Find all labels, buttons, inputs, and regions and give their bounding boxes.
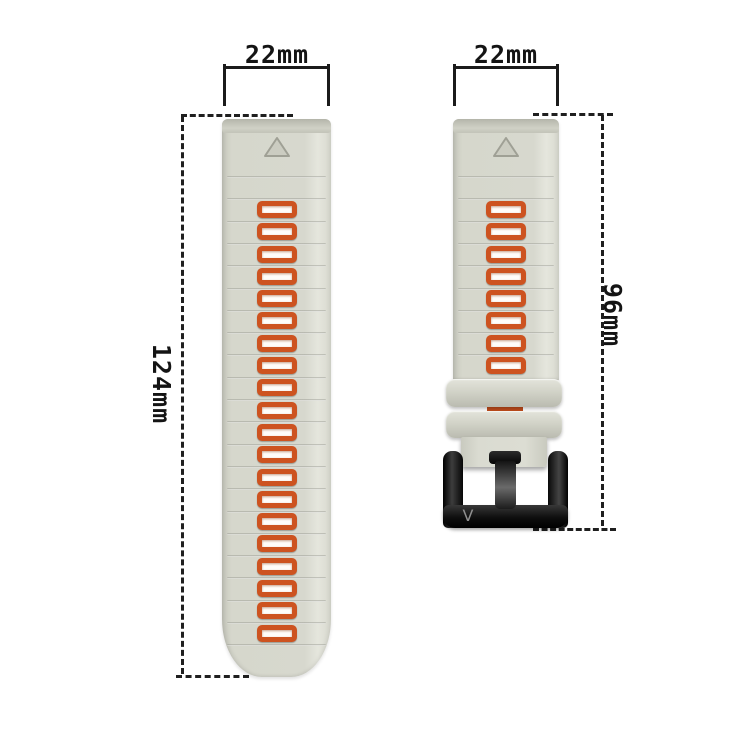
left-width-tick-start — [223, 64, 226, 106]
strap-hole — [486, 312, 526, 329]
strap-hole — [257, 335, 297, 352]
right-strap — [453, 119, 559, 380]
strap-hole — [486, 268, 526, 285]
left-strap-lug-end — [222, 119, 331, 133]
right-width-dimension-line — [454, 66, 557, 69]
strap-hole — [257, 446, 297, 463]
strap-hole — [257, 312, 297, 329]
strap-hole — [257, 357, 297, 374]
strap-hole — [257, 402, 297, 419]
strap-hole — [257, 424, 297, 441]
strap-groove — [227, 176, 325, 178]
strap-groove — [458, 176, 553, 178]
strap-hole — [257, 580, 297, 597]
strap-groove — [227, 198, 325, 200]
strap-hole — [257, 535, 297, 552]
buckle-logo: V — [455, 505, 481, 527]
strap-groove — [227, 399, 325, 401]
strap-hole — [257, 290, 297, 307]
strap-hole — [257, 223, 297, 240]
strap-groove — [227, 243, 325, 245]
right-width-tick-start — [453, 64, 456, 106]
strap-groove — [227, 555, 325, 557]
watch-band-dimension-diagram: 22mm 124mm 22mm 96mm — [0, 0, 750, 750]
strap-groove — [458, 332, 553, 334]
right-width-tick-end — [556, 64, 559, 106]
strap-groove — [458, 265, 553, 267]
right-length-extension-bottom — [533, 528, 616, 531]
strap-groove — [227, 421, 325, 423]
strap-groove — [227, 265, 325, 267]
strap-hole — [257, 513, 297, 530]
left-length-extension-bottom — [176, 675, 249, 678]
left-length-dimension-line — [181, 116, 184, 674]
keeper-loop — [446, 379, 562, 407]
strap-groove — [227, 622, 325, 624]
strap-hole — [257, 268, 297, 285]
strap-hole — [486, 357, 526, 374]
keeper-loop — [446, 411, 562, 438]
strap-groove — [458, 198, 553, 200]
strap-groove — [227, 488, 325, 490]
left-width-dimension-line — [224, 66, 328, 69]
strap-hole — [257, 246, 297, 263]
alignment-triangle-icon — [262, 135, 292, 163]
strap-hole — [257, 491, 297, 508]
strap-groove — [227, 332, 325, 334]
strap-hole — [486, 246, 526, 263]
left-strap-length-label: 124mm — [146, 324, 176, 444]
strap-groove — [458, 243, 553, 245]
left-length-extension-top — [181, 114, 293, 117]
right-strap-lug-end — [453, 119, 559, 133]
buckle-tang — [495, 461, 516, 509]
strap-hole — [257, 602, 297, 619]
strap-hole — [257, 469, 297, 486]
strap-hole — [257, 625, 297, 642]
strap-groove — [227, 644, 325, 646]
strap-groove — [227, 466, 325, 468]
strap-hole — [257, 379, 297, 396]
strap-hole — [257, 201, 297, 218]
right-strap-length-label: 96mm — [597, 255, 627, 375]
left-width-tick-end — [327, 64, 330, 106]
strap-hole — [486, 290, 526, 307]
strap-hole — [486, 335, 526, 352]
strap-hole — [257, 558, 297, 575]
left-strap — [222, 119, 331, 677]
strap-hole — [486, 201, 526, 218]
strap-hole — [486, 223, 526, 240]
alignment-triangle-icon — [491, 135, 521, 163]
